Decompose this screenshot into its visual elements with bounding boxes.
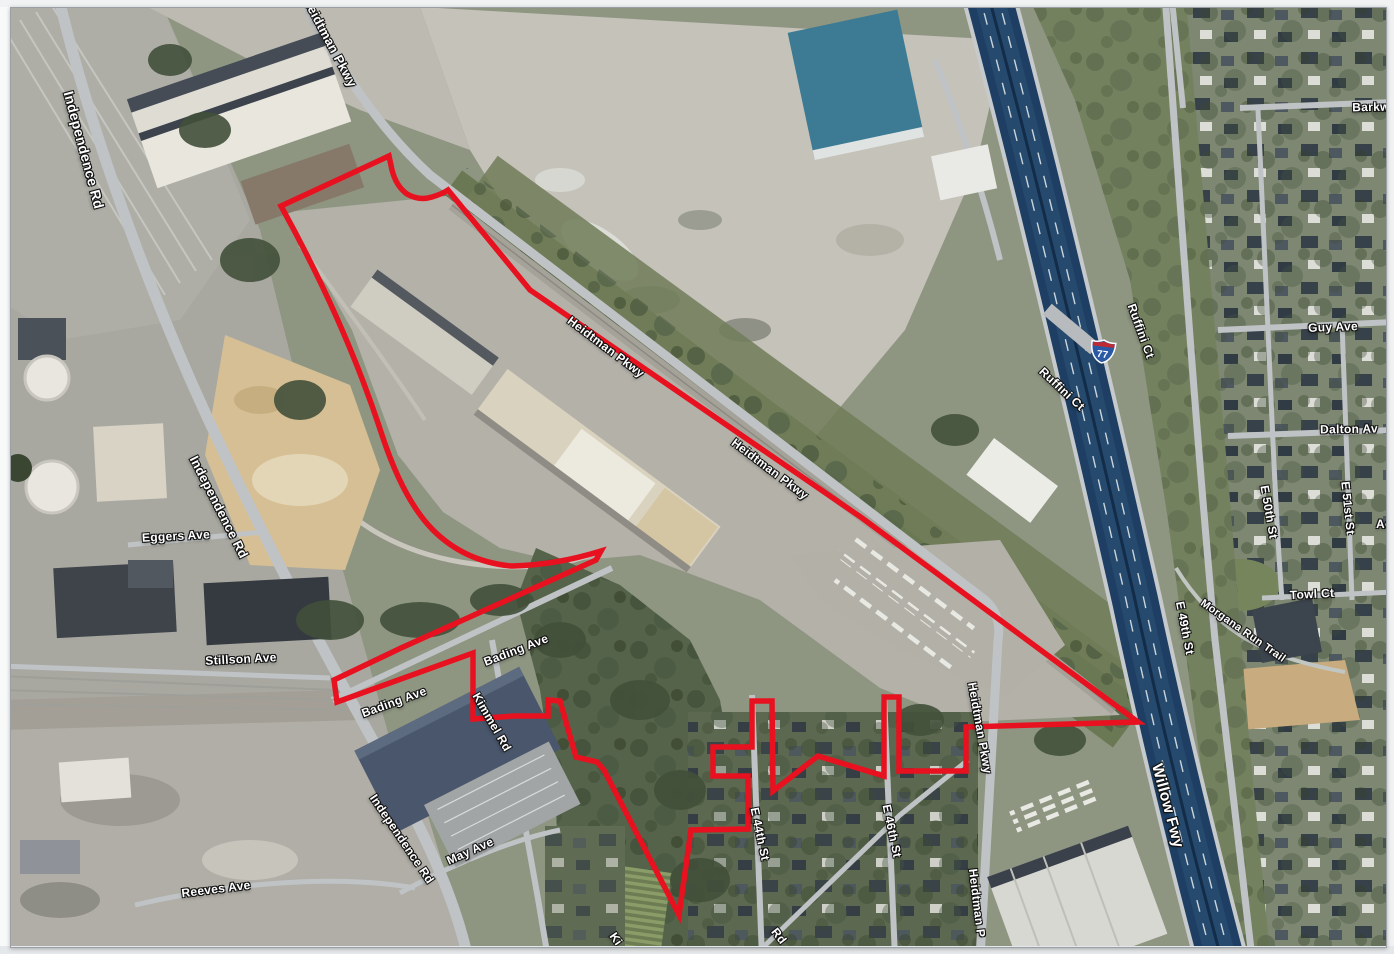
map-page: Independence Rd Heidtman Pkwy Heidtman P… <box>0 0 1394 954</box>
storage-tank <box>26 461 78 513</box>
aerial-imagery <box>0 0 1394 954</box>
storage-tank <box>25 356 69 400</box>
